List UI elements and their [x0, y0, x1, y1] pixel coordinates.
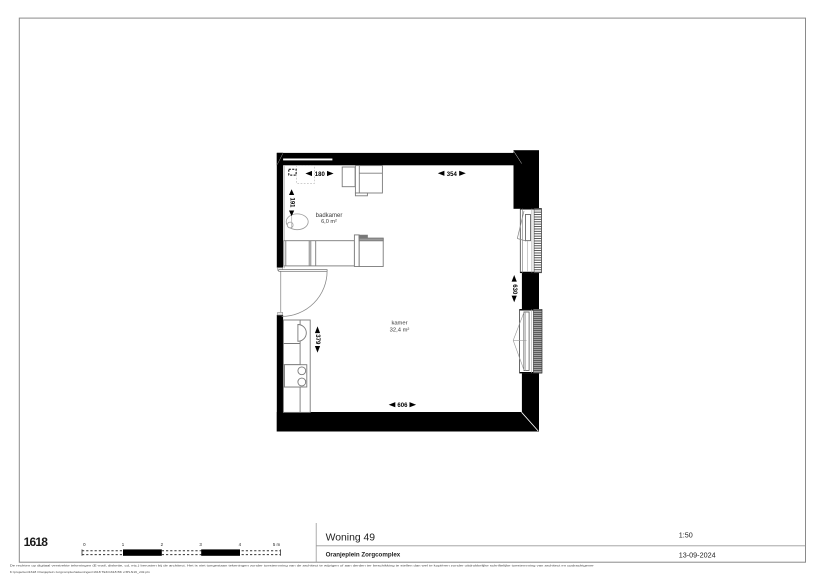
svg-text:Woning 49: Woning 49 [326, 532, 376, 543]
svg-text:606: 606 [397, 403, 408, 409]
svg-text:kamer: kamer [391, 320, 407, 326]
svg-text:Oranjeplein Zorgcomplex: Oranjeplein Zorgcomplex [326, 551, 401, 558]
svg-text:191: 191 [288, 197, 294, 208]
svg-text:630: 630 [511, 284, 517, 295]
svg-text:13-09-2024: 13-09-2024 [679, 550, 716, 559]
svg-text:badkamer: badkamer [316, 213, 343, 219]
svg-text:De rechten op digitaal verstre: De rechten op digitaal verstrekte tekeni… [10, 564, 594, 568]
svg-text:379: 379 [314, 334, 320, 345]
svg-text:1:50: 1:50 [679, 530, 693, 539]
svg-text:5 m: 5 m [273, 542, 281, 547]
svg-text:6,0 m²: 6,0 m² [321, 219, 337, 225]
svg-text:32,4 m²: 32,4 m² [390, 328, 410, 334]
svg-text:180: 180 [315, 172, 326, 178]
svg-text:354: 354 [447, 172, 458, 178]
svg-text:K:\projecten\1618 Oranjeplein: K:\projecten\1618 Oranjeplein zorgcomple… [10, 570, 150, 574]
svg-text:1618: 1618 [24, 535, 49, 549]
